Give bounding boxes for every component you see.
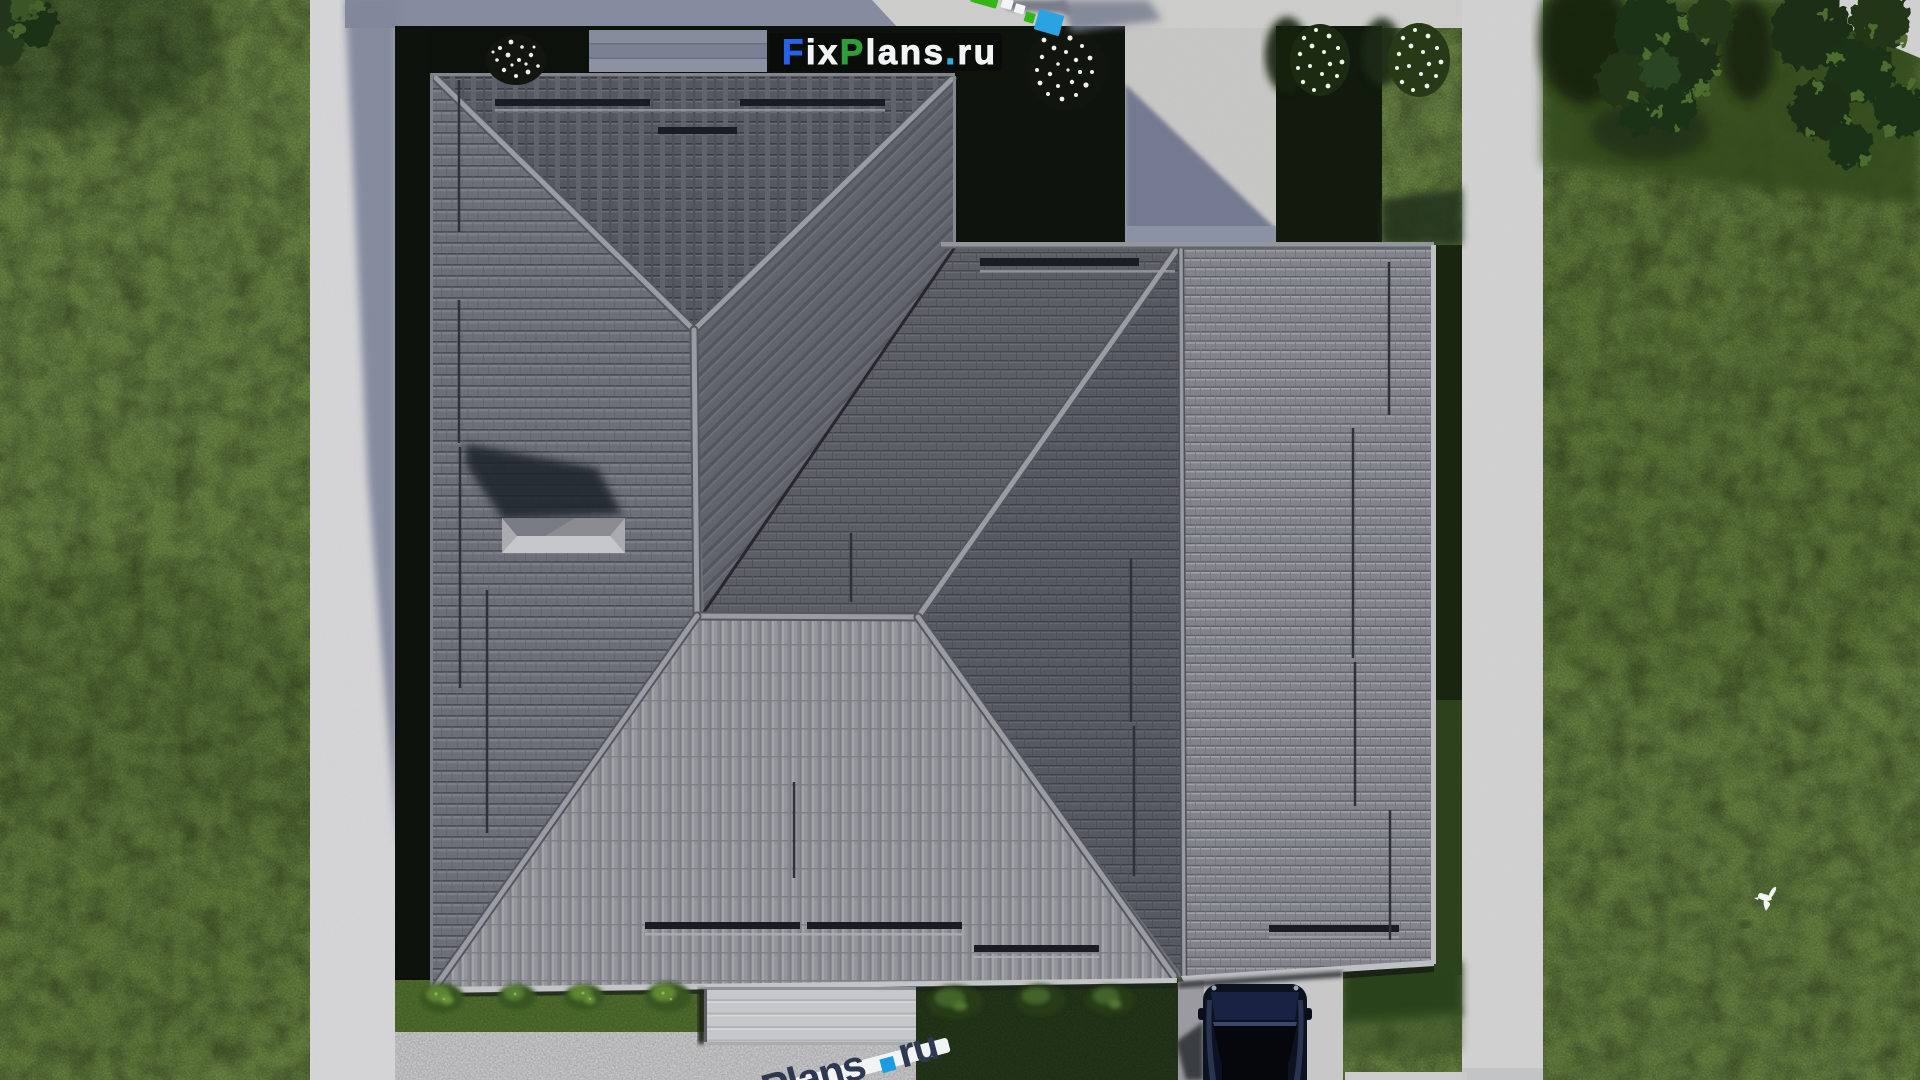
svg-text:FixPlans.ru: FixPlans.ru bbox=[782, 33, 994, 72]
